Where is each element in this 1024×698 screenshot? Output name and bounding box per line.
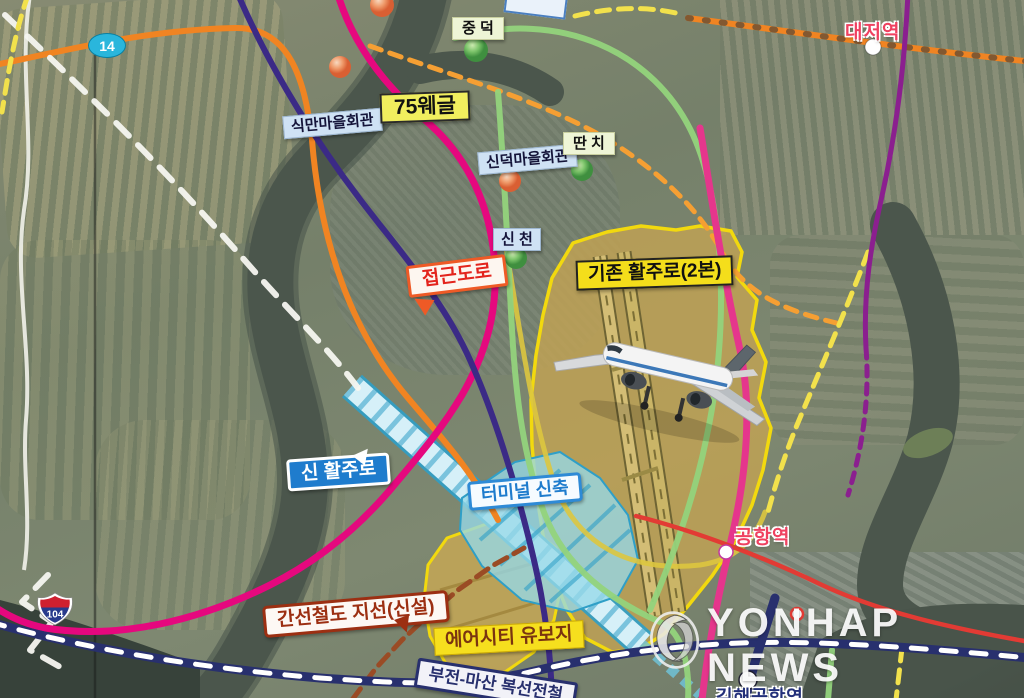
label-sincheon: 신 천 (493, 228, 541, 251)
label-ttanchi: 딴 치 (563, 132, 615, 155)
label-route-75: 75웨글 (380, 90, 471, 123)
airport-station-marker (719, 545, 733, 559)
label-daejeo-station: 대저역 (845, 22, 900, 44)
green-line-short (828, 650, 832, 698)
map-graphics (0, 0, 1024, 698)
purple-dashed-east (848, 348, 867, 495)
label-airport-station: 공항역 (735, 527, 790, 549)
route-shield-14: 14 (88, 33, 126, 58)
village-marker-orange (329, 56, 351, 78)
route-shield-104: 104 (35, 592, 75, 626)
district-boundary-line (21, 0, 30, 570)
label-existing-runway: 기존 활주로(2본) (576, 255, 734, 290)
route-14-number: 14 (99, 38, 115, 54)
red-line-station-marker (791, 608, 803, 620)
village-marker-green (464, 38, 488, 62)
airplane-illustration (552, 300, 792, 460)
label-gimhae-airport-station: 김해공항역 (716, 687, 804, 698)
label-jungdeok: 중 덕 (452, 17, 504, 40)
route-104-number: 104 (47, 610, 64, 621)
satellite-map: 식만마을회관 중 덕 75웨글 신덕마을회관 딴 치 신 천 접근도로 기존 활… (0, 0, 1024, 698)
yellow-dashed-top (575, 9, 680, 16)
